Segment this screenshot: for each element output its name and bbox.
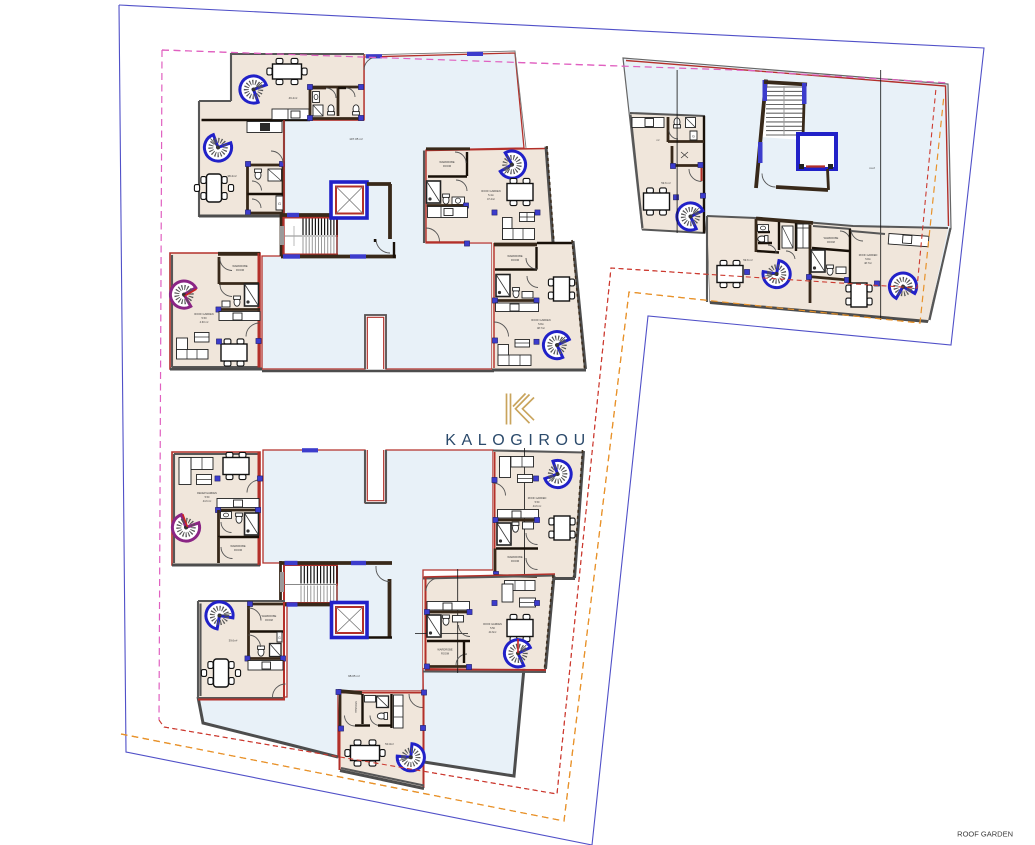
- svg-text:ROOM: ROOM: [511, 559, 519, 563]
- svg-text:WARDROBE: WARDROBE: [230, 544, 245, 548]
- svg-text:59.6 m²: 59.6 m²: [661, 181, 671, 185]
- svg-text:59.6 m²: 59.6 m²: [743, 258, 753, 262]
- svg-text:m²: m²: [656, 139, 659, 142]
- svg-text:48.7m²: 48.7m²: [864, 262, 872, 265]
- svg-text:5.4m: 5.4m: [488, 193, 494, 197]
- svg-text:WARDROBE: WARDROBE: [824, 237, 839, 240]
- svg-text:ROOF GARDEN: ROOF GARDEN: [528, 497, 547, 500]
- svg-text:G: G: [692, 135, 695, 139]
- svg-text:47.4m²: 47.4m²: [487, 197, 495, 201]
- svg-text:WARDROBE: WARDROBE: [439, 160, 454, 164]
- svg-text:38.2m²: 38.2m²: [227, 174, 236, 178]
- svg-text:ROOM: ROOM: [441, 652, 449, 656]
- svg-text:ROOF GARDEN: ROOF GARDEN: [481, 189, 500, 193]
- svg-text:107.05 m²: 107.05 m²: [349, 137, 363, 141]
- svg-text:48.7m²: 48.7m²: [537, 326, 545, 330]
- svg-text:ROOM: ROOM: [236, 268, 244, 272]
- svg-text:44.6 m²: 44.6 m²: [203, 500, 212, 503]
- svg-text:44.6m²: 44.6m²: [489, 631, 497, 634]
- svg-text:WARDROBE: WARDROBE: [232, 264, 247, 268]
- svg-text:39.6m²: 39.6m²: [229, 639, 238, 643]
- svg-text:ROOM: ROOM: [234, 548, 242, 552]
- svg-text:RECEP.GARDEN: RECEP.GARDEN: [197, 492, 217, 495]
- svg-text:ROOF GARDEN: ROOF GARDEN: [859, 254, 878, 257]
- svg-text:G: G: [278, 201, 281, 206]
- svg-text:4.60 m²: 4.60 m²: [200, 320, 209, 324]
- svg-text:roof: roof: [869, 166, 874, 170]
- svg-text:5.50: 5.50: [490, 627, 495, 630]
- svg-text:WARDROBE: WARDROBE: [437, 648, 452, 652]
- svg-text:5.8m: 5.8m: [865, 258, 871, 261]
- svg-text:46.4m²: 46.4m²: [289, 96, 298, 100]
- svg-text:5.50: 5.50: [535, 501, 540, 504]
- svg-text:KALOGIROU: KALOGIROU: [445, 432, 591, 449]
- svg-text:ROOF GARDEN: ROOF GARDEN: [483, 623, 502, 626]
- svg-text:STORAGE: STORAGE: [354, 701, 357, 713]
- svg-text:5.50: 5.50: [201, 316, 207, 320]
- svg-text:98.05 m²: 98.05 m²: [348, 674, 360, 678]
- svg-text:WARDROBE: WARDROBE: [262, 615, 277, 618]
- svg-text:44.6 m²: 44.6 m²: [533, 505, 542, 508]
- svg-text:ROOM: ROOM: [265, 619, 273, 622]
- svg-text:ROOM: ROOM: [827, 241, 835, 244]
- svg-text:ROOM: ROOM: [443, 164, 451, 168]
- svg-text:50.3m²: 50.3m²: [385, 742, 394, 746]
- svg-text:5.8m: 5.8m: [538, 322, 544, 326]
- svg-text:5.50: 5.50: [205, 496, 210, 499]
- svg-text:ROOM: ROOM: [511, 258, 519, 262]
- svg-text:WARDROBE: WARDROBE: [507, 555, 522, 559]
- svg-text:WARDROBE: WARDROBE: [507, 254, 522, 258]
- svg-text:ROOF GARDEN: ROOF GARDEN: [531, 318, 550, 322]
- svg-text:ROOF GARDEN: ROOF GARDEN: [957, 830, 1013, 839]
- svg-text:ROOF GARDEN: ROOF GARDEN: [194, 312, 213, 316]
